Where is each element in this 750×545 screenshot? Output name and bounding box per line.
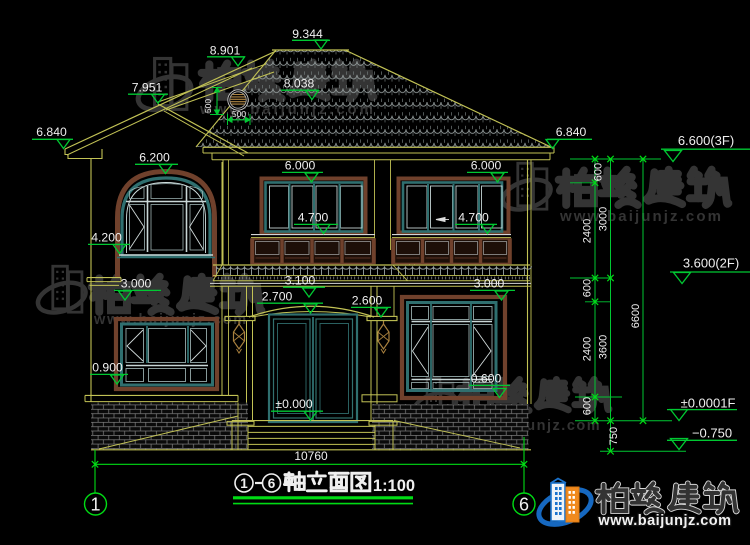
svg-text:7.951: 7.951 [132, 81, 163, 95]
svg-text:1: 1 [240, 476, 248, 491]
svg-text:8.901: 8.901 [210, 44, 241, 58]
svg-text:6: 6 [268, 476, 276, 491]
svg-text:3.000: 3.000 [121, 277, 152, 291]
svg-text:10760: 10760 [294, 449, 328, 463]
svg-text:−0.750: −0.750 [692, 426, 732, 441]
svg-text:600: 600 [582, 397, 594, 415]
svg-text:4.200: 4.200 [91, 231, 122, 245]
svg-text:2.700: 2.700 [262, 289, 293, 303]
svg-text:3600: 3600 [598, 335, 610, 359]
svg-text:0.600: 0.600 [471, 372, 502, 386]
svg-text:6.200: 6.200 [139, 151, 170, 165]
svg-text:2400: 2400 [582, 337, 594, 361]
svg-text:6.840: 6.840 [556, 125, 587, 139]
svg-text:1: 1 [90, 495, 100, 515]
svg-text:6.840: 6.840 [36, 125, 67, 139]
svg-text:600: 600 [593, 163, 605, 181]
svg-text:750: 750 [608, 427, 620, 445]
svg-text:500: 500 [232, 109, 246, 119]
svg-text:2.600: 2.600 [352, 294, 383, 308]
svg-text:1:100: 1:100 [373, 477, 415, 495]
svg-text:4.700: 4.700 [298, 211, 329, 225]
svg-text:600: 600 [582, 279, 594, 297]
svg-text:3.600(2F): 3.600(2F) [683, 256, 739, 271]
svg-text:4.700: 4.700 [458, 211, 489, 225]
svg-text:3.100: 3.100 [285, 273, 316, 287]
svg-text:2400: 2400 [582, 219, 594, 243]
svg-text:6600: 6600 [630, 304, 642, 328]
svg-text:3.000: 3.000 [474, 277, 505, 291]
svg-text:6.000: 6.000 [471, 159, 502, 173]
svg-text:3000: 3000 [598, 207, 610, 231]
svg-text:6.000: 6.000 [285, 159, 316, 173]
svg-text:±0.000: ±0.000 [275, 397, 312, 411]
svg-text:www.baijunjz.com: www.baijunjz.com [597, 513, 731, 529]
svg-text:0.900: 0.900 [92, 361, 123, 375]
svg-text:6: 6 [519, 495, 529, 515]
svg-text:8.038: 8.038 [284, 77, 315, 91]
svg-text:9.344: 9.344 [292, 27, 323, 41]
svg-text:500: 500 [203, 99, 213, 113]
svg-text:6.600(3F): 6.600(3F) [678, 133, 734, 148]
svg-text:±0.0001F: ±0.0001F [681, 396, 736, 411]
